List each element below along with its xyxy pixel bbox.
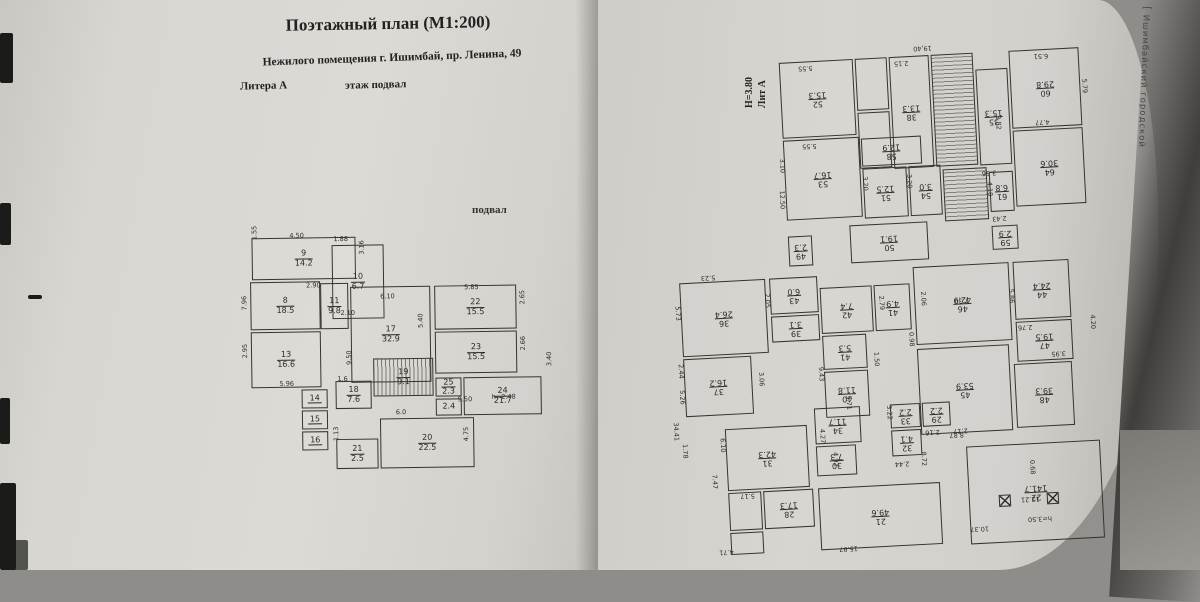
dimension-label: 3.20 [861,176,870,191]
room-31: 3142.3 [725,425,810,491]
room-label: 16 [308,436,322,446]
dimension-label: 5.79 [1080,78,1089,93]
room-label: 199.1 [396,368,410,386]
room-18: 187.6 [335,381,371,409]
dimension-label: 5.86 [1007,289,1016,304]
column-symbol [1047,492,1060,505]
room-label: 4553.9 [956,380,975,399]
dimension-label: 5.55 [798,64,813,73]
room-21: 212.5 [336,438,378,469]
room-label: 324.1 [899,433,914,451]
room-label: 3626.4 [715,309,734,328]
dimension-label: 1.50 [872,352,881,367]
dimension-label: 3.16 [357,240,365,255]
dimension-label: 2.16 [925,428,940,437]
dimension-label: 3.06 [757,372,766,387]
stairwell: 199.1 [373,358,434,397]
room-label: 5019.1 [880,233,899,252]
room-label: 5316.7 [813,169,832,188]
room-label: 4719.5 [1035,331,1054,350]
room-label: 3411.7 [828,416,847,435]
dimension-label: 4.18 [985,182,994,197]
room-22: 2215.5 [434,285,517,330]
room-53: 5316.7 [783,137,863,221]
room-15: 15 [302,410,328,429]
room-label: 3142.3 [758,449,777,468]
dimension-label: 6.0 [396,408,406,416]
room-label: 3716.2 [709,377,728,396]
background-corner [1120,430,1200,570]
dimension-label: 9.50 [345,350,353,365]
upper-floor-plan: 5215.35316.73813.33515.36029.85812.95112… [645,22,1112,568]
room-label: 5112.5 [876,183,895,202]
dimension-label: 4.27 [818,429,827,444]
room-36: 3626.4 [679,279,769,357]
dimension-label: 3.22 [885,405,894,420]
page-subtitle: Нежилого помещения г. Ишимбай, пр. Ленин… [182,45,602,72]
dimension-label: 2.95 [241,344,249,359]
lit-height: Н=3.80 [744,18,755,108]
dimension-label: 2.65 [518,290,526,305]
room-20: 2022.5 [380,417,475,468]
dimension-label: 6.10 [380,292,395,300]
scanned-document-photo: Поэтажный план (М1:200) Нежилого помещен… [0,0,1200,570]
dimension-label: 0.68 [1028,460,1037,475]
room-39: 393.1 [771,314,820,342]
left-page: Поэтажный план (М1:200) Нежилого помещен… [0,0,600,570]
room-52: 5215.3 [779,59,857,139]
dimension-label: 12.21 [1021,495,1040,504]
dimension-label: 4.92 [831,452,840,467]
room-label: 427.4 [839,300,854,318]
room-label: 415.3 [837,343,852,361]
dimension-label: 4.77 [1035,118,1050,127]
dimension-label: 6.10 [719,438,728,453]
room-37: 3716.2 [683,356,754,417]
dimension-label: 5.17 [740,492,755,501]
basement-floor-plan: 914.2106.7818.5119.81732.92215.52315.513… [243,226,581,473]
room-label: 187.6 [346,386,360,404]
room-label: 436.0 [786,286,801,304]
dimension-label: 19,40 [913,44,932,53]
dimension-label: 12.50 [778,190,787,209]
room-33: 332.2 [890,403,921,429]
dimension-label: 4.20 [1089,314,1098,329]
room-label: 1732.9 [382,325,400,343]
dimension-label: 2.43 [992,214,1007,223]
scan-artifact [28,295,42,299]
room-54: 543.0 [908,165,943,217]
dimension-label: 2.06 [919,291,928,306]
dimension-label: 7.96 [240,296,248,311]
room-label: 5215.3 [808,90,827,109]
dimension-label: 1.88 [333,235,348,243]
room-label: 332.2 [898,406,913,424]
room-41: 415.3 [822,334,868,370]
room-label: 393.1 [788,319,803,337]
room-14: 14 [302,389,328,408]
room-label: 15 [308,415,322,425]
dimension-label: 3.56 [982,169,997,178]
right-page: ЦИАН 5215.35316.73813.33515.36029.85812.… [598,0,1158,570]
room-label: 5812.9 [882,142,901,161]
room-21: 2149.6 [818,482,943,550]
dimension-label: 2.76 [1018,323,1033,332]
dimension-label: h=3.50 [1028,514,1052,523]
floor-label: этаж подвал [345,78,407,92]
scan-artifact [0,398,10,444]
room-label: 2215.5 [466,298,484,316]
room-25: 252.3 [435,377,461,396]
room-58: 5812.9 [861,136,922,167]
room-label: 292.2 [929,405,944,423]
dimension-label: 2.44 [677,364,686,379]
room-11: 119.8 [320,283,349,329]
room-label: 6430.6 [1040,158,1059,177]
dimension-label: h=2.48 [492,393,516,401]
dimension-label: 5.26 [678,390,687,405]
dimension-label: 3.82 [994,115,1003,130]
lit-annotation: Лит А Н=3.80 [744,18,768,108]
room-49: 492.3 [788,235,814,266]
room-29: 292.2 [922,401,951,426]
dimension-label: 4.75 [462,427,470,442]
room-label: 212.5 [350,445,364,463]
dimension-label: 5.85 [464,283,479,291]
room [855,57,890,111]
room-label: 616.8 [994,182,1009,200]
room-43: 436.0 [769,276,819,314]
dimension-label: 2.90 [306,281,321,289]
dimension-label: 4.71 [719,548,734,557]
dimension-label: 5.23 [701,273,716,282]
room-label: 2817.3 [780,500,799,519]
dimension-label: 5.55 [802,142,817,151]
dimension-label: 7.30 [954,296,969,305]
scan-artifact [0,203,11,245]
column-symbol [999,494,1012,507]
dimension-label: 2.44 [895,460,910,469]
room-label: 592.9 [998,228,1013,246]
dimension-label: 6.51 [1034,52,1049,61]
dimension-label: 2.15 [894,59,909,68]
room-label: 6029.8 [1036,79,1055,98]
lit-letter: Лит А [757,18,768,108]
room-42: 427.4 [820,285,874,334]
dimension-label: 5.73 [674,306,683,321]
dimension-label: 0.98 [907,332,916,347]
room-label: 2315.5 [467,343,485,361]
dimension-label: 1.55 [250,226,258,241]
room-label: 818.5 [276,297,294,315]
page-title: Поэтажный план (М1:200) [248,12,528,37]
room-51: 5112.5 [862,166,909,218]
room-label: 252.3 [441,378,455,396]
room-label: 543.0 [918,181,933,199]
room-28: 2817.3 [763,489,815,530]
room-16: 16 [302,431,328,450]
room-label: 4424.4 [1033,280,1052,299]
dimension-label: 5.40 [417,313,425,328]
litera-label: Литера А [240,79,287,92]
dimension-label: 3.10 [778,158,787,173]
room [730,531,764,555]
basement-caption: подвал [472,204,507,216]
room-label: 3813.3 [902,103,921,122]
room-label: 2.4 [442,403,455,412]
room-label: 2022.5 [418,434,436,452]
dimension-label: 2.10 [340,309,355,317]
dimension-label: 10.37 [970,525,989,534]
dimension-label: 7.47 [710,474,719,489]
dimension-label: 2.05 [763,293,772,308]
room-44: 4424.4 [1012,259,1071,320]
room-59: 592.9 [992,225,1019,250]
dimension-label: 5.71 [844,395,853,410]
dimension-label: 1.78 [681,444,690,459]
room-label: 2149.6 [871,507,890,526]
room-23: 2315.5 [435,331,518,374]
dimension-label: 15.97 [839,544,858,553]
dimension-label: 3.40 [545,352,553,367]
scan-artifact [0,33,13,83]
dimension-label: 5.96 [279,380,294,388]
dimension-label: 1.13 [332,427,340,442]
dimension-label: 3.95 [1051,349,1066,358]
room-label: 14 [308,394,322,404]
dimension-label: 1.6 [337,375,347,383]
dimension-label: 3.20 [905,174,914,189]
dimension-label: 9.50 [458,395,473,403]
room-48: 4839.3 [1014,361,1075,428]
room-label: 914.2 [295,249,313,267]
room-label: 492.3 [793,242,808,260]
room-label: 1316.6 [277,351,295,369]
room-label: 119.8 [327,297,341,315]
dimension-label: 9.43 [817,367,826,382]
stairwell [931,53,979,167]
room-64: 6430.6 [1013,127,1087,207]
dimension-label: 2.79 [877,295,886,310]
room-label: 414.9 [885,298,900,316]
dimension-label: 4.50 [289,232,304,240]
dimension-label: 2.17 [953,426,968,435]
dimension-label: 34.41 [672,422,681,441]
dimension-label: 2.66 [519,336,527,351]
dimension-label: 8.72 [920,451,929,466]
scan-artifact [12,540,28,570]
room-label: 4839.3 [1035,385,1054,404]
room-32: 324.1 [891,429,922,457]
room-50: 5019.1 [849,221,929,263]
